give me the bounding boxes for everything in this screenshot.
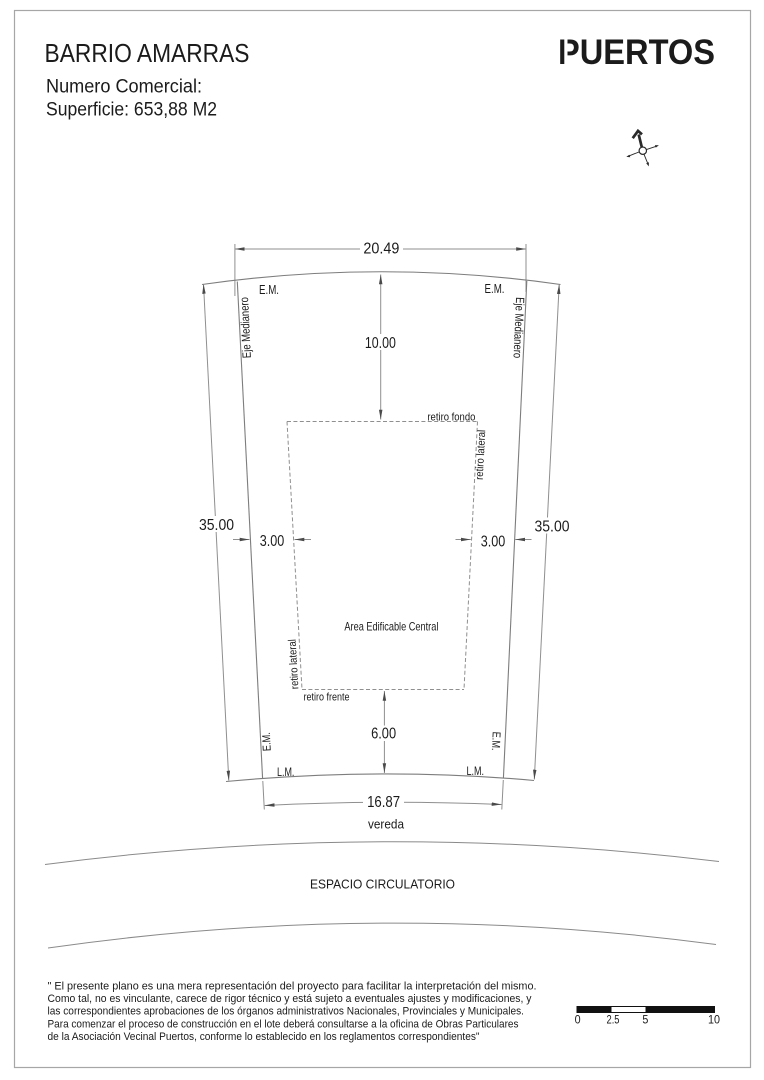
svg-text:retiro fondo: retiro fondo: [427, 412, 475, 424]
svg-text:E.M.: E.M.: [261, 732, 274, 752]
svg-text:ESPACIO CIRCULATORIO: ESPACIO CIRCULATORIO: [310, 878, 455, 892]
svg-text:16.87: 16.87: [367, 794, 400, 811]
svg-text:0: 0: [575, 1015, 581, 1027]
svg-text:10: 10: [708, 1015, 720, 1027]
svg-text:vereda: vereda: [368, 817, 405, 832]
svg-text:E.M.: E.M.: [485, 281, 505, 296]
svg-text:L.M.: L.M.: [467, 766, 485, 778]
svg-text:E.M.: E.M.: [259, 282, 279, 297]
svg-text:20.49: 20.49: [363, 240, 399, 257]
svg-text:10.00: 10.00: [365, 335, 396, 352]
svg-text:L.M.: L.M.: [277, 767, 295, 779]
svg-text:retiro frente: retiro frente: [304, 691, 350, 703]
svg-text:las correspondientes aprobacio: las correspondientes aprobaciones de los…: [48, 1006, 525, 1018]
svg-text:5: 5: [642, 1015, 648, 1027]
svg-text:Para comenzar el proceso de co: Para comenzar el proceso de construcción…: [48, 1018, 519, 1030]
svg-text:Como tal, no es vinculante, ca: Como tal, no es vinculante, carece de ri…: [48, 993, 532, 1005]
svg-text:Eje Medianero: Eje Medianero: [510, 297, 527, 359]
svg-text:PUERTOS: PUERTOS: [558, 32, 715, 72]
svg-text:retiro lateral: retiro lateral: [474, 430, 489, 481]
svg-text:6.00: 6.00: [371, 726, 396, 743]
svg-text:BARRIO AMARRAS: BARRIO AMARRAS: [45, 40, 250, 68]
svg-text:Eje Medianero: Eje Medianero: [237, 297, 254, 359]
svg-text:3.00: 3.00: [260, 533, 285, 550]
svg-text:35.00: 35.00: [199, 517, 234, 534]
svg-text:" El presente plano es una mer: " El presente plano es una mera represen…: [48, 980, 537, 992]
svg-text:35.00: 35.00: [535, 519, 570, 536]
svg-text:de la Asociación Vecinal Puert: de la Asociación Vecinal Puertos, confor…: [48, 1031, 480, 1043]
svg-text:Numero Comercial:: Numero Comercial:: [46, 77, 202, 98]
svg-text:E.M.: E.M.: [489, 731, 502, 751]
svg-text:Superficie: 653,88 M2: Superficie: 653,88 M2: [46, 100, 217, 121]
svg-text:2.5: 2.5: [607, 1015, 620, 1027]
svg-text:Area Edificable Central: Area Edificable Central: [344, 620, 438, 634]
svg-text:3.00: 3.00: [481, 534, 506, 551]
